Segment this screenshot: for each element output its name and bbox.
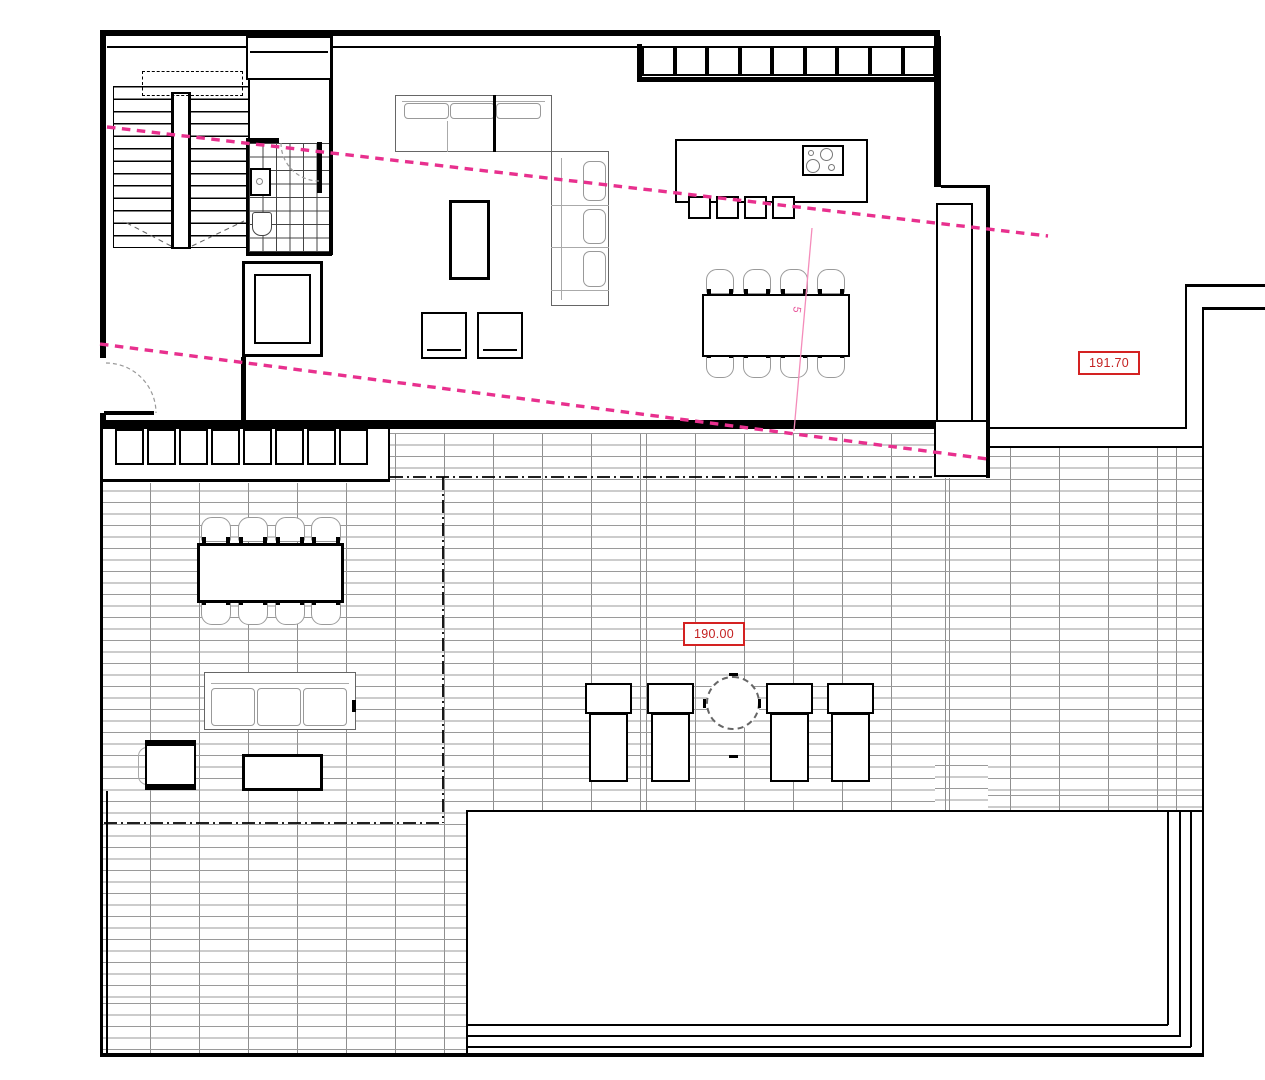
chaise-cushion bbox=[583, 161, 606, 201]
sun-lounger-body bbox=[831, 713, 870, 782]
outdoor-armchair bbox=[145, 740, 196, 790]
wall-pier-lower bbox=[934, 420, 988, 477]
front-planter-band bbox=[115, 429, 368, 465]
site-right-boundary bbox=[1202, 308, 1204, 1056]
bathroom-wall-bottom bbox=[246, 252, 332, 256]
entry-door-leaf bbox=[104, 411, 154, 415]
bathroom-wall-top bbox=[246, 138, 279, 143]
sofa-cushion bbox=[450, 103, 495, 119]
coffee-table bbox=[449, 200, 490, 280]
planter-cell bbox=[243, 429, 272, 465]
dining-chair bbox=[817, 269, 845, 294]
sun-lounger-head bbox=[827, 683, 874, 714]
counter-unit bbox=[642, 46, 675, 76]
counter-unit bbox=[903, 46, 936, 76]
staircase-stringer bbox=[171, 92, 191, 249]
kitchen-counter-front-band bbox=[637, 77, 935, 82]
site-step-horizontal-inner bbox=[1202, 307, 1265, 310]
elevation-label-upper-text: 191.70 bbox=[1089, 356, 1129, 370]
cooktop-burner bbox=[828, 164, 835, 171]
outdoor-sofa-arm-mark bbox=[352, 700, 356, 712]
elevator-cab-inner bbox=[254, 274, 311, 344]
dining-table bbox=[702, 294, 850, 357]
sun-lounger-head bbox=[585, 683, 632, 714]
counter-unit bbox=[740, 46, 773, 76]
planter-cell bbox=[147, 429, 176, 465]
round-table-tick-top bbox=[729, 673, 738, 676]
planter-cell bbox=[179, 429, 208, 465]
pool-rim-line-vertical-3 bbox=[1190, 810, 1192, 1047]
elevation-label-terrace: 190.00 bbox=[683, 622, 745, 646]
bathroom-wall-left bbox=[246, 140, 249, 253]
entry-closet bbox=[246, 36, 332, 80]
dining-chair bbox=[706, 269, 734, 294]
pool-rim-line-bottom-3 bbox=[466, 1046, 1191, 1048]
cooktop-burner bbox=[820, 148, 833, 161]
dining-chair bbox=[780, 269, 808, 294]
planter-cell bbox=[339, 429, 368, 465]
upper-terrace-step-edge bbox=[988, 427, 1186, 429]
floor-plan-canvas: 5 191.70 190.00 bbox=[0, 0, 1265, 1080]
outdoor-dining-chair bbox=[201, 517, 231, 542]
site-step-horizontal-outer bbox=[1185, 284, 1265, 287]
wall-top-inner-face bbox=[107, 46, 637, 48]
planter-cell bbox=[211, 429, 240, 465]
round-table-tick-right bbox=[758, 699, 761, 708]
outdoor-sofa-cushion bbox=[211, 688, 255, 726]
outdoor-dining-table bbox=[197, 543, 344, 603]
sun-lounger-body bbox=[651, 713, 690, 782]
entry-door-swing-arc bbox=[106, 363, 156, 413]
round-table-tick-bottom bbox=[729, 755, 738, 758]
pool-rim-line-bottom-1 bbox=[466, 1024, 1168, 1026]
planter-cell bbox=[115, 429, 144, 465]
sun-lounger-head bbox=[647, 683, 694, 714]
outdoor-dining-chair bbox=[275, 517, 305, 542]
cooktop-burner bbox=[806, 159, 820, 173]
bathroom-sink-drain bbox=[256, 178, 263, 185]
site-step-vertical bbox=[1185, 285, 1187, 429]
swimming-pool bbox=[466, 810, 1203, 1057]
elevation-label-terrace-text: 190.00 bbox=[694, 627, 734, 641]
ottoman-seam bbox=[483, 349, 517, 351]
planter-band-bottom-edge bbox=[100, 479, 390, 482]
toilet bbox=[252, 212, 272, 236]
chaise-cushion bbox=[583, 209, 606, 244]
chaise-divider bbox=[551, 247, 609, 248]
ottoman bbox=[477, 312, 523, 359]
sun-lounger-body bbox=[589, 713, 628, 782]
indoor-sofa-back-line bbox=[402, 101, 545, 102]
outdoor-coffee-table bbox=[242, 754, 323, 791]
bar-stool bbox=[716, 196, 739, 219]
planter-cell bbox=[307, 429, 336, 465]
counter-unit bbox=[707, 46, 740, 76]
wall-pier-tall bbox=[936, 203, 973, 427]
outdoor-sofa-back-line bbox=[211, 683, 349, 684]
chaise-back-line bbox=[561, 158, 562, 300]
planter-band-right-edge bbox=[388, 420, 390, 482]
outdoor-dining-chair bbox=[311, 600, 341, 625]
ottoman bbox=[421, 312, 467, 359]
counter-unit bbox=[870, 46, 903, 76]
sofa-cushion bbox=[404, 103, 449, 119]
terrace-left-inner-edge bbox=[106, 791, 108, 1055]
bar-stool bbox=[772, 196, 795, 219]
staircase-landing-dashed bbox=[142, 71, 243, 96]
pool-rim-line-vertical-2 bbox=[1179, 810, 1181, 1037]
dining-chair bbox=[743, 269, 771, 294]
wall-left bbox=[100, 36, 106, 358]
round-side-table bbox=[706, 676, 760, 730]
counter-unit bbox=[675, 46, 708, 76]
sun-lounger-body bbox=[770, 713, 809, 782]
bar-stool bbox=[688, 196, 711, 219]
sofa-partition-line bbox=[493, 95, 496, 152]
terrace-left-edge bbox=[100, 429, 103, 1057]
counter-unit bbox=[837, 46, 870, 76]
pool-rim-line-vertical-1 bbox=[1167, 810, 1169, 1025]
pool-rim-line-bottom-2 bbox=[466, 1035, 1180, 1037]
chaise-cushion bbox=[583, 251, 606, 287]
outdoor-dining-chair bbox=[201, 600, 231, 625]
kitchen-counter-units bbox=[642, 46, 935, 76]
wall-right-upper bbox=[934, 36, 941, 187]
elevation-label-upper: 191.70 bbox=[1078, 351, 1140, 375]
outdoor-sofa-cushion bbox=[257, 688, 301, 726]
planter-cell bbox=[275, 429, 304, 465]
outdoor-sofa-cushion bbox=[303, 688, 347, 726]
counter-unit bbox=[772, 46, 805, 76]
wall-top bbox=[100, 30, 940, 36]
terrace-deck-strip bbox=[935, 478, 988, 810]
round-table-tick-left bbox=[703, 699, 706, 708]
sofa-cushion bbox=[496, 103, 541, 119]
chaise-divider bbox=[551, 205, 609, 206]
right-deck-top-edge bbox=[988, 446, 1204, 448]
counter-unit bbox=[805, 46, 838, 76]
outdoor-dining-chair bbox=[238, 600, 268, 625]
terrace-deck-right bbox=[988, 448, 1203, 810]
cooktop-burner bbox=[808, 150, 814, 156]
bathroom-door-stub bbox=[317, 142, 322, 193]
chaise-divider bbox=[551, 290, 609, 291]
wall-right-step bbox=[941, 185, 990, 188]
outdoor-dining-chair bbox=[238, 517, 268, 542]
sofa-seat-divider bbox=[447, 121, 448, 152]
ottoman-seam bbox=[427, 349, 461, 351]
sun-lounger-head bbox=[766, 683, 813, 714]
outdoor-dining-chair bbox=[311, 517, 341, 542]
terrace-bottom-edge bbox=[100, 1053, 1204, 1057]
wall-below-elevator bbox=[241, 357, 246, 420]
wall-bottom bbox=[100, 420, 988, 429]
outdoor-dining-chair bbox=[275, 600, 305, 625]
entry-closet-shelf-line bbox=[250, 51, 328, 53]
bar-stool bbox=[744, 196, 767, 219]
